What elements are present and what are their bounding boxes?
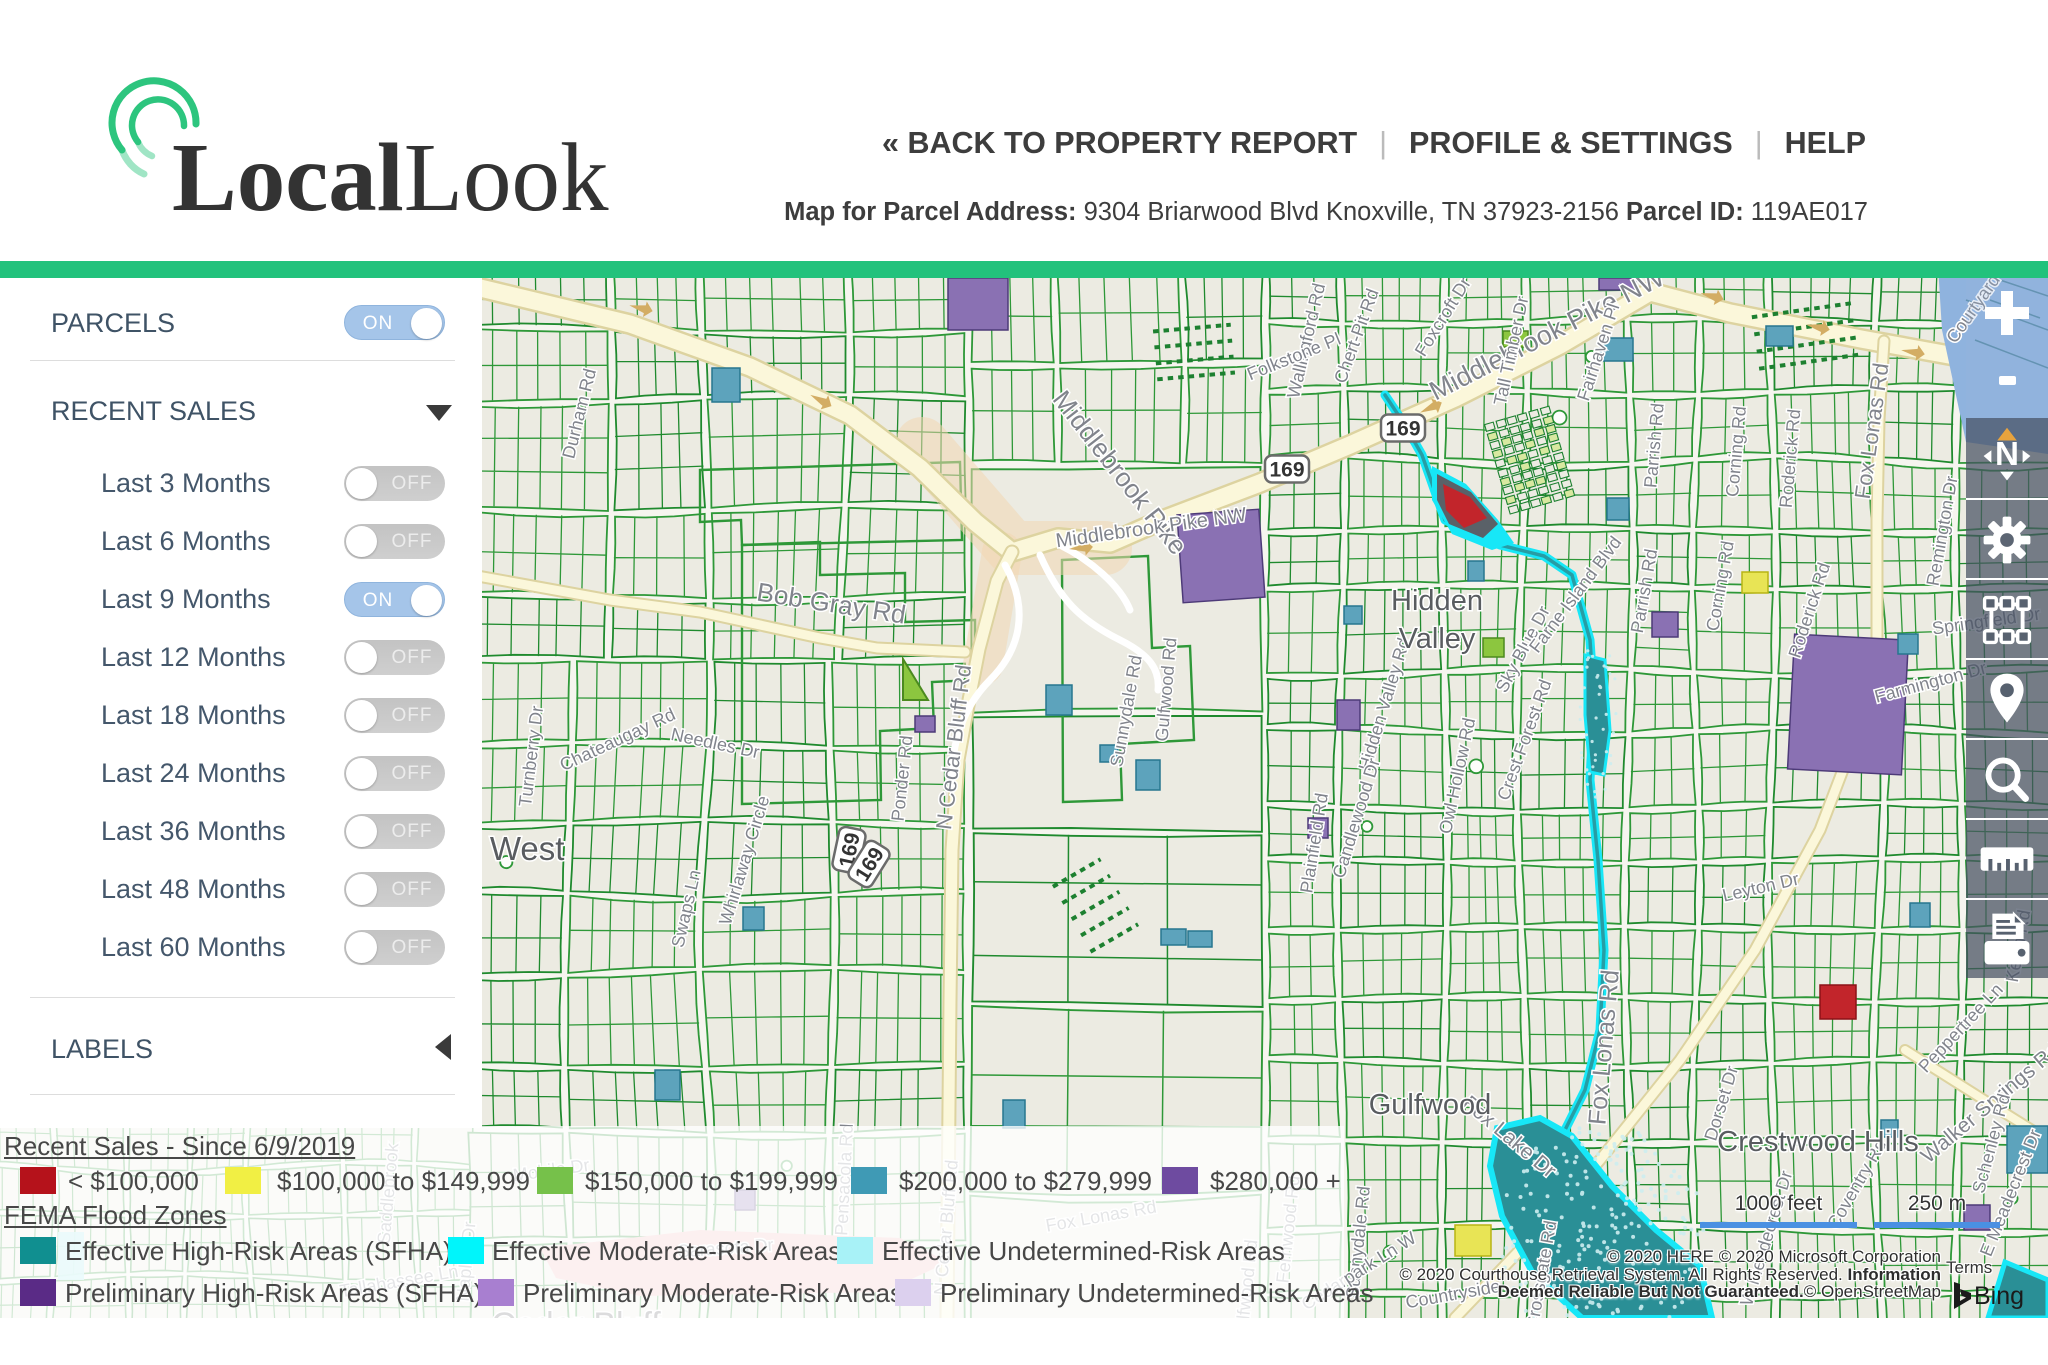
svg-text:169: 169 <box>1385 418 1420 441</box>
svg-text:t West: t West <box>472 830 565 867</box>
svg-text:N: N <box>1995 436 2019 473</box>
svg-text:LocalLook: LocalLook <box>172 124 609 227</box>
svg-text:Hidden: Hidden <box>1391 585 1483 617</box>
svg-text:169: 169 <box>1269 459 1304 482</box>
svg-text:Bing: Bing <box>1974 1282 2024 1310</box>
svg-text:Gulfwood: Gulfwood <box>1369 1089 1492 1121</box>
svg-text:Valley: Valley <box>1399 623 1476 655</box>
svg-text:Crestwood Hills: Crestwood Hills <box>1717 1126 1918 1158</box>
